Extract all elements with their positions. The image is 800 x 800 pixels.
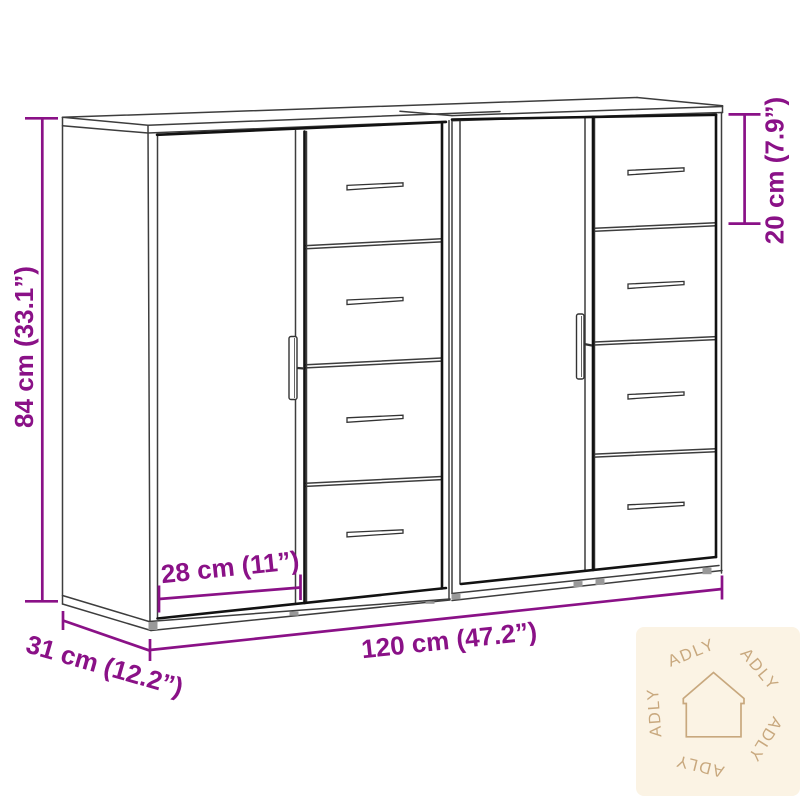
svg-text:20 cm (7.9”): 20 cm (7.9”): [760, 97, 790, 244]
svg-text:ADLY: ADLY: [644, 687, 665, 738]
svg-text:84 cm (33.1”): 84 cm (33.1”): [9, 266, 39, 428]
